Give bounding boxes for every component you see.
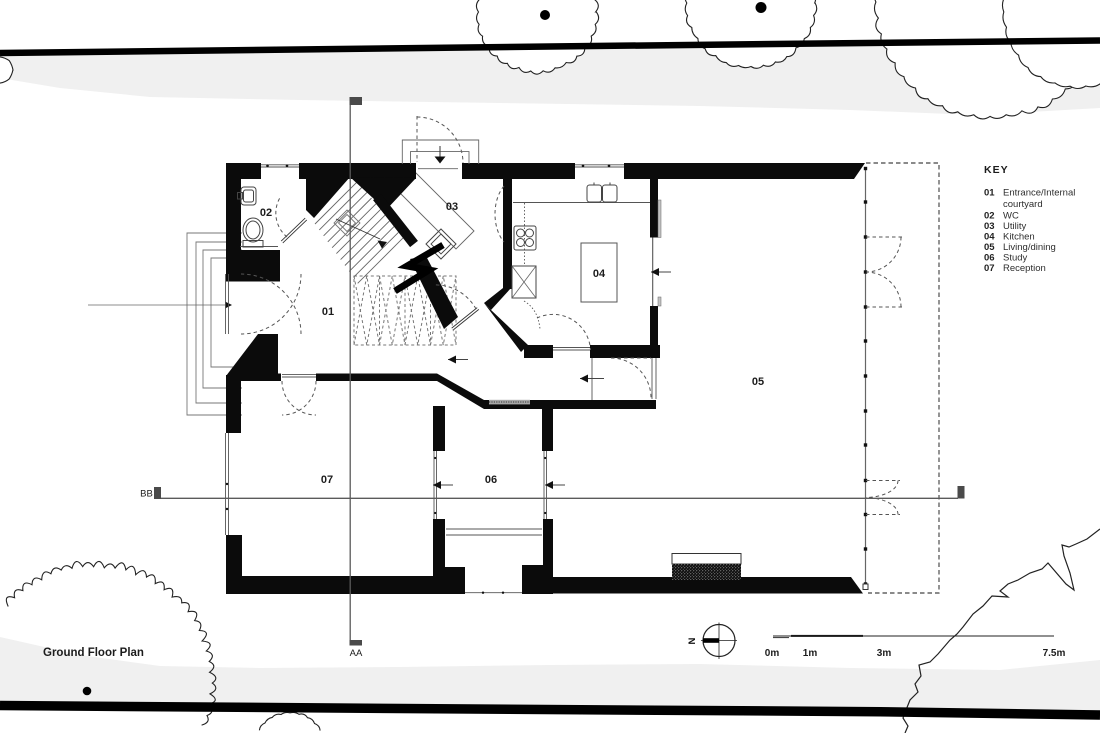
svg-text:7.5m: 7.5m [1043,648,1066,659]
svg-text:AA: AA [350,648,363,659]
svg-text:04: 04 [593,268,606,280]
svg-text:07: 07 [984,263,995,274]
svg-text:WC: WC [1003,211,1019,222]
svg-text:KEY: KEY [984,164,1009,176]
svg-text:02: 02 [984,211,995,222]
svg-text:Kitchen: Kitchen [1003,232,1035,243]
svg-text:3m: 3m [877,648,892,659]
svg-text:Living/dining: Living/dining [1003,242,1056,253]
svg-text:03: 03 [446,201,458,213]
svg-text:Ground Floor Plan: Ground Floor Plan [43,647,144,659]
svg-text:07: 07 [321,474,333,486]
svg-text:04: 04 [984,232,995,243]
svg-text:N: N [687,637,698,644]
svg-text:05: 05 [984,242,995,253]
svg-text:01: 01 [322,306,334,318]
svg-text:05: 05 [752,376,764,388]
svg-text:1m: 1m [803,648,818,659]
svg-text:Entrance/Internal: Entrance/Internal [1003,188,1075,199]
svg-text:Reception: Reception [1003,263,1046,274]
svg-text:03: 03 [984,221,995,232]
svg-text:0m: 0m [765,648,780,659]
svg-text:01: 01 [984,188,995,199]
svg-text:06: 06 [485,474,497,486]
svg-text:Utility: Utility [1003,221,1026,232]
svg-text:02: 02 [260,207,272,219]
svg-text:courtyard: courtyard [1003,199,1043,210]
svg-text:BB: BB [140,489,153,500]
svg-text:06: 06 [984,253,995,264]
svg-text:Study: Study [1003,253,1028,264]
